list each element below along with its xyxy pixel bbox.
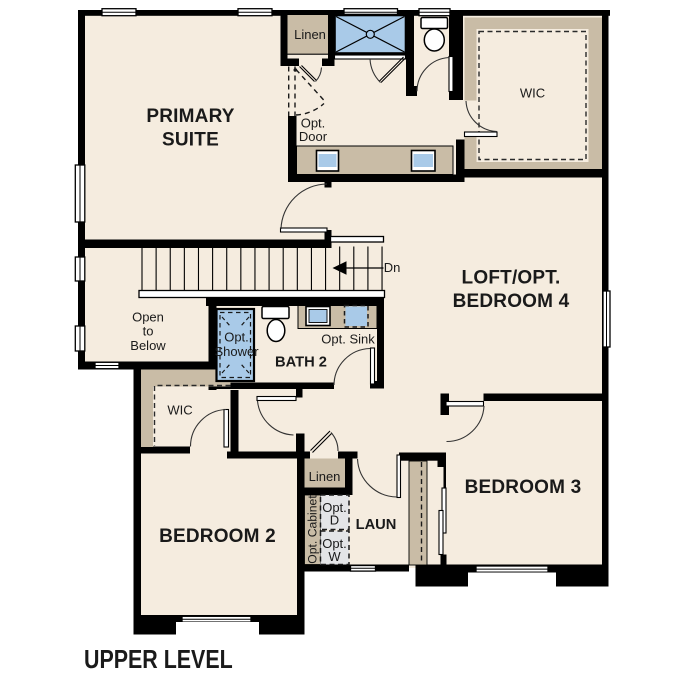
svg-text:Opt.: Opt. (224, 330, 249, 345)
svg-text:Linen: Linen (294, 27, 326, 42)
svg-text:Door: Door (299, 129, 328, 144)
svg-text:Dn: Dn (384, 260, 401, 275)
svg-text:LOFT/OPT.: LOFT/OPT. (462, 268, 561, 289)
svg-text:Shower: Shower (214, 344, 259, 359)
svg-text:Below: Below (130, 338, 166, 353)
svg-text:UPPER LEVEL: UPPER LEVEL (84, 645, 233, 673)
svg-text:BEDROOM 3: BEDROOM 3 (465, 477, 582, 498)
svg-text:Open: Open (132, 310, 164, 325)
svg-text:W: W (328, 549, 341, 564)
svg-text:Linen: Linen (309, 469, 341, 484)
svg-text:LAUN: LAUN (356, 517, 397, 533)
svg-text:WIC: WIC (520, 86, 545, 101)
svg-text:Opt. Sink: Opt. Sink (321, 332, 375, 347)
svg-text:D: D (330, 513, 339, 528)
svg-text:Opt. Cabinet: Opt. Cabinet (306, 495, 320, 564)
svg-text:BEDROOM 4: BEDROOM 4 (453, 291, 570, 312)
svg-text:WIC: WIC (167, 403, 192, 418)
svg-text:SUITE: SUITE (162, 130, 219, 151)
svg-text:PRIMARY: PRIMARY (146, 106, 234, 127)
svg-text:to: to (143, 323, 154, 338)
svg-text:BATH 2: BATH 2 (275, 355, 327, 371)
svg-text:BEDROOM 2: BEDROOM 2 (159, 526, 276, 547)
